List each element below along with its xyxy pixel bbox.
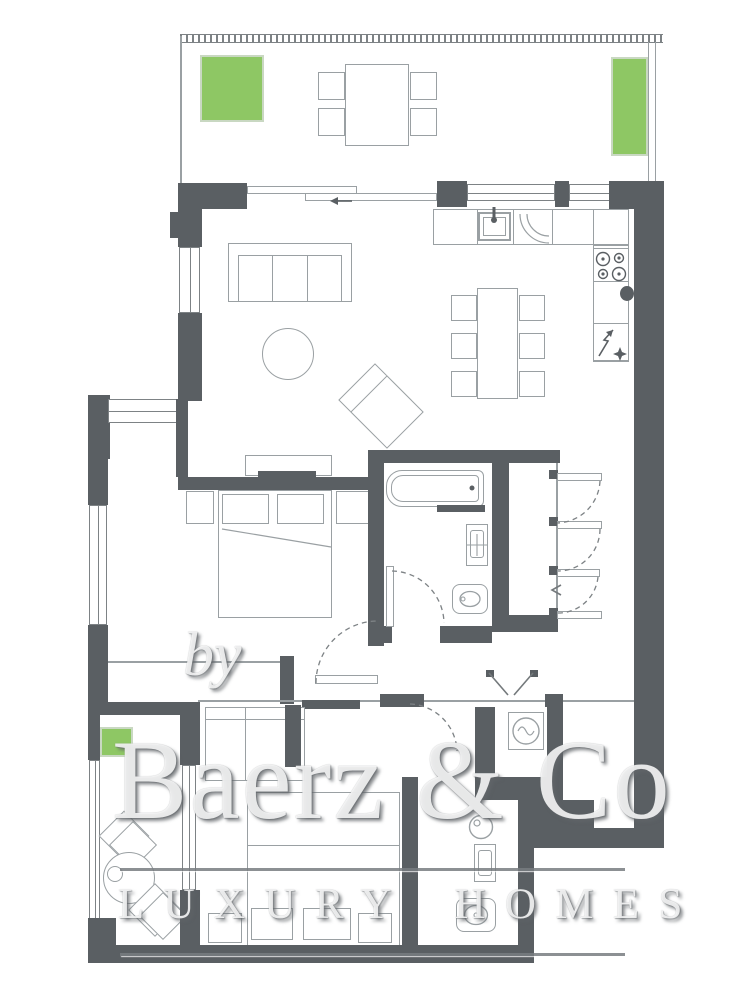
stove-icon [593, 248, 629, 282]
outdoor-chair [410, 108, 437, 136]
window [108, 399, 178, 423]
sink-basin [483, 217, 506, 236]
wall-knob [620, 286, 634, 301]
dining-chair [451, 333, 477, 359]
floor-plan: by Baerz & Co LUXURY HOMES [0, 0, 747, 1000]
counter-divider [552, 209, 553, 245]
sofa-seat [238, 255, 342, 302]
wall-segment [178, 183, 247, 209]
wall-segment [88, 702, 100, 760]
closet-face-line [556, 463, 558, 615]
glass-panel [569, 184, 613, 201]
wall-segment [368, 626, 392, 643]
outdoor-chair [410, 72, 437, 100]
door-leaf [386, 566, 394, 627]
headboard-bar [258, 471, 316, 479]
door-jamb-stub [486, 670, 494, 677]
glass-panel [467, 184, 555, 201]
watermark-tagline: LUXURY HOMES [118, 880, 702, 929]
counter-divider [513, 209, 514, 245]
washbasin-bowl [470, 530, 484, 558]
sofa-cushion-line [272, 255, 273, 302]
wall-segment [302, 700, 360, 709]
wall-bathroom-north [368, 450, 560, 463]
closet-door-leaf [557, 473, 602, 481]
wall-segment [440, 626, 492, 643]
wall-segment [380, 694, 424, 707]
balcony-railing [180, 34, 663, 43]
wall-segment [170, 212, 180, 238]
toilet [452, 584, 488, 614]
wall-segment [437, 181, 467, 207]
wall-segment [178, 209, 202, 247]
wall-segment [280, 656, 294, 704]
bathtub-inner [391, 475, 479, 502]
wall-segment [178, 313, 202, 401]
outdoor-table [345, 64, 409, 146]
bath-shelf [437, 505, 485, 512]
washbasin-bowl [478, 850, 492, 876]
window [89, 505, 107, 625]
watermark-brand: Baerz & Co [112, 716, 672, 846]
door-leaf [315, 675, 378, 684]
watermark-rule [120, 953, 625, 956]
planter-box [611, 57, 648, 156]
wall-segment [88, 459, 108, 505]
planter-box [200, 55, 264, 122]
dining-chair [519, 295, 545, 321]
door-swing-icon [392, 571, 444, 623]
sofa-cushion-line [307, 255, 308, 302]
closet-door-leaf [557, 569, 600, 577]
wall-segment [368, 450, 384, 646]
round-rug [262, 328, 314, 380]
closet-door-swing-icon [558, 577, 598, 613]
counter-divider [593, 209, 594, 245]
pillow [277, 494, 324, 524]
wall-segment [88, 625, 108, 704]
dining-table [477, 288, 518, 399]
wall-segment [492, 463, 509, 632]
closet-door-swing-icon [557, 481, 600, 523]
dining-chair [519, 333, 545, 359]
balcony-left-edge [180, 36, 182, 186]
watermark-rule [120, 868, 625, 871]
wall-segment [88, 395, 110, 459]
window [89, 760, 100, 920]
pillow [222, 494, 269, 524]
dining-chair [451, 295, 477, 321]
window [179, 247, 200, 313]
watermark-by: by [183, 620, 242, 691]
nightstand [186, 491, 214, 524]
electrical-panel [593, 323, 629, 361]
kitchen-counter [433, 209, 629, 245]
wall-segment [88, 918, 116, 948]
outdoor-chair [318, 72, 345, 100]
sliding-door-pane [305, 193, 437, 201]
door-jamb-stub [530, 670, 538, 677]
wall-segment [492, 615, 558, 632]
nightstand [336, 491, 372, 524]
outdoor-chair [318, 108, 345, 136]
closet-door-leaf [557, 521, 602, 529]
dining-chair [519, 371, 545, 397]
wall-segment [176, 399, 188, 477]
balcony-right-edge [648, 42, 656, 186]
closet-door-leaf [557, 611, 602, 619]
closet-door-swing-icon [558, 529, 600, 571]
wall-segment [555, 181, 569, 207]
dining-chair [451, 371, 477, 397]
